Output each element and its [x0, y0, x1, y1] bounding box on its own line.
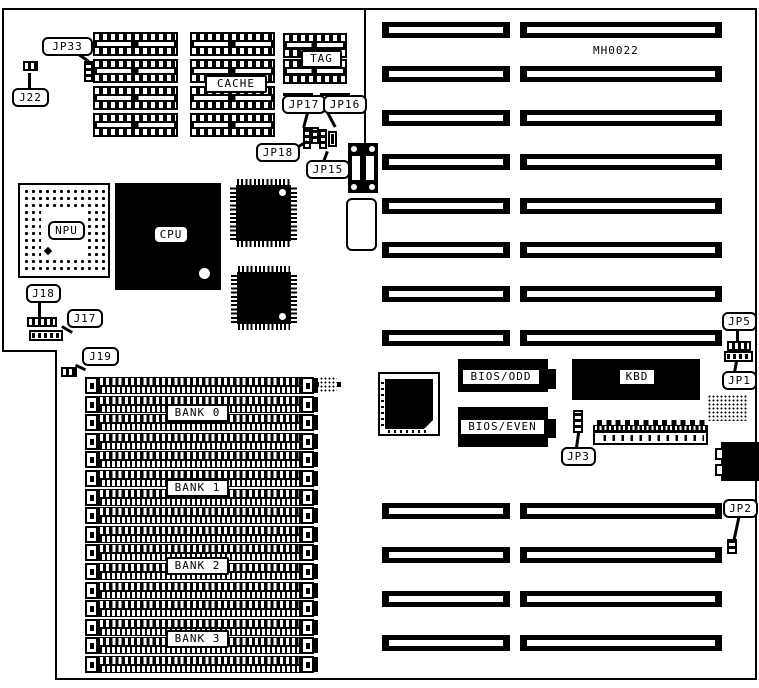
isa-slot — [382, 503, 510, 519]
bios-odd-tab — [548, 369, 556, 389]
keyboard-connector-tab — [715, 448, 724, 460]
isa-slot — [520, 110, 722, 126]
jumper-jp33 — [84, 61, 93, 82]
callout-jp15: JP15 — [306, 160, 350, 179]
isa-slot — [520, 66, 722, 82]
callout-jp3: JP3 — [561, 447, 596, 466]
callout-jp33: JP33 — [42, 37, 93, 56]
isa-slot — [382, 198, 510, 214]
isa-slot — [382, 286, 510, 302]
jumper-jp18 — [303, 127, 311, 149]
board-edge-bottom — [57, 678, 757, 680]
jumper-j17 — [29, 330, 63, 341]
simm-socket — [85, 656, 318, 673]
jumper-jp16 — [319, 129, 327, 149]
simm-socket — [85, 377, 318, 394]
cache-chip — [93, 59, 178, 83]
callout-tail — [326, 112, 336, 128]
callout-j22: J22 — [12, 88, 49, 107]
callout-jp1: JP1 — [722, 371, 757, 390]
keyboard-din-connector — [721, 442, 759, 481]
isa-slot — [520, 242, 722, 258]
cache-chip — [93, 32, 178, 56]
bank0-label: BANK 0 — [166, 404, 229, 422]
jumper-jp5 — [727, 341, 751, 351]
oscillator — [319, 376, 337, 393]
bank2-label: BANK 2 — [166, 557, 229, 575]
board-trace-line — [364, 10, 366, 144]
tag-label: TAG — [301, 50, 342, 68]
bank1-label: BANK 1 — [166, 479, 229, 497]
simm-socket — [85, 526, 318, 543]
simm-socket — [85, 582, 318, 599]
callout-j18: J18 — [26, 284, 61, 303]
bios-even-tab — [548, 419, 556, 438]
simm-socket — [85, 451, 318, 468]
isa-slot — [382, 110, 510, 126]
board-edge-left-lower — [55, 350, 57, 680]
jumper-jp2 — [727, 539, 737, 554]
simm-socket — [85, 433, 318, 450]
cpu-label: CPU — [153, 225, 189, 244]
plcc-chip — [378, 372, 440, 436]
cache-chip — [190, 32, 275, 56]
jumper-j19 — [61, 367, 77, 377]
board-edge-left-upper — [2, 8, 4, 352]
board-edge-right — [755, 8, 757, 680]
npu-label: NPU — [48, 221, 85, 240]
callout-tail — [28, 73, 31, 88]
callout-jp18: JP18 — [256, 143, 300, 162]
cache-chip — [93, 86, 178, 110]
callout-j17: J17 — [67, 309, 103, 328]
callout-jp17: JP17 — [282, 95, 326, 114]
oscillator — [707, 394, 748, 421]
callout-jp2: JP2 — [723, 499, 758, 518]
callout-tail — [736, 330, 739, 343]
isa-slot — [520, 330, 722, 346]
power-connector — [593, 420, 708, 445]
jumper-jp3 — [573, 410, 583, 433]
isa-slot — [382, 591, 510, 607]
isa-slot — [520, 198, 722, 214]
isa-slot — [382, 66, 510, 82]
cache-chip — [93, 113, 178, 137]
bios-odd-label: BIOS/ODD — [461, 368, 541, 386]
bios-even-label: BIOS/EVEN — [459, 418, 546, 436]
simm-socket — [85, 507, 318, 524]
isa-slot — [520, 22, 722, 38]
qfp-chip — [231, 266, 297, 330]
jumper-jp1 — [724, 351, 753, 362]
isa-slot — [520, 286, 722, 302]
oscillator-lead — [337, 382, 341, 387]
isa-slot — [520, 503, 722, 519]
jumper-jp17 — [311, 127, 319, 144]
jumper-jp15 — [328, 131, 337, 147]
motherboard-diagram: MH0022 CACHE TAG JP33 J22 JP17 JP16 — [0, 0, 759, 688]
isa-slot — [520, 154, 722, 170]
board-edge-top — [2, 8, 757, 10]
crystal-component — [346, 198, 377, 251]
isa-slot — [520, 591, 722, 607]
callout-tail — [733, 517, 741, 540]
cache-label: CACHE — [205, 75, 267, 93]
pin1-dot — [199, 268, 210, 279]
isa-slot — [382, 635, 510, 651]
isa-slot — [382, 22, 510, 38]
isa-slot — [382, 330, 510, 346]
simm-socket — [85, 600, 318, 617]
jumper-j22 — [23, 61, 38, 71]
isa-slot — [382, 547, 510, 563]
callout-jp16: JP16 — [323, 95, 367, 114]
callout-j19: J19 — [82, 347, 119, 366]
isa-slot — [382, 154, 510, 170]
cache-chip — [190, 113, 275, 137]
bank3-label: BANK 3 — [166, 630, 229, 648]
isa-slot — [382, 242, 510, 258]
jumper-j18 — [27, 317, 57, 327]
board-edge-notch — [2, 350, 57, 352]
isa-slot — [520, 635, 722, 651]
qfp-chip — [230, 179, 297, 247]
callout-tail — [302, 113, 309, 128]
isa-slot — [520, 547, 722, 563]
kbd-label: KBD — [618, 368, 656, 386]
part-number: MH0022 — [593, 44, 639, 57]
keyboard-connector-tab — [715, 464, 724, 476]
callout-jp5: JP5 — [722, 312, 757, 331]
mounting-bracket — [348, 143, 378, 193]
callout-tail — [38, 303, 41, 318]
